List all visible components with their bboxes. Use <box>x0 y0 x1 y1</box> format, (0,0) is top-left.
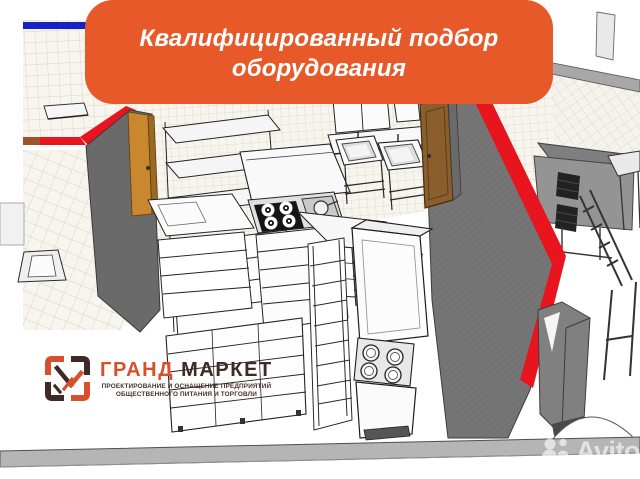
blue-accent-strip <box>23 22 87 29</box>
compressor-grille <box>556 172 580 200</box>
avito-watermark-text: Avito <box>576 436 640 466</box>
door-handle <box>427 154 431 158</box>
logo-title: ГРАНДМАРКЕТ <box>100 359 273 381</box>
logo-title-market: МАРКЕТ <box>181 359 273 381</box>
logo-tagline-line1: ПРОЕКТИРОВАНИЕ И ОСНАЩЕНИЕ ПРЕДПРИЯТИЙ <box>100 383 273 391</box>
side-cabinet <box>0 203 24 245</box>
tray-rack-trolley <box>308 238 352 430</box>
grand-market-logo-icon <box>44 355 91 402</box>
avito-logo-icon <box>541 436 573 466</box>
wall-column <box>596 12 615 60</box>
logo-title-grand: ГРАНД <box>100 359 174 381</box>
grand-market-logo-text: ГРАНДМАРКЕТ ПРОЕКТИРОВАНИЕ И ОСНАЩЕНИЕ П… <box>100 359 273 399</box>
dark-side-table <box>538 302 590 436</box>
sauce-pan <box>314 201 328 215</box>
door-handle <box>146 166 150 170</box>
compressor-grille-2 <box>555 204 578 232</box>
promo-banner: Квалифицированный подбор оборудования <box>85 0 553 104</box>
prep-table-left <box>18 250 66 282</box>
prep-island <box>148 194 254 318</box>
logo-tagline-line2: ОБЩЕСТВЕННОГО ПИТАНИЯ И ТОРГОВЛИ <box>100 391 273 399</box>
logo-tagline: ПРОЕКТИРОВАНИЕ И ОСНАЩЕНИЕ ПРЕДПРИЯТИЙ О… <box>100 383 273 399</box>
avito-watermark: Avito <box>541 436 640 466</box>
entry-door <box>420 96 461 208</box>
promo-banner-line1: Квалифицированный подбор <box>139 24 498 54</box>
promo-banner-line2: оборудования <box>232 54 406 84</box>
grand-market-logo: ГРАНДМАРКЕТ ПРОЕКТИРОВАНИЕ И ОСНАЩЕНИЕ П… <box>44 355 273 402</box>
